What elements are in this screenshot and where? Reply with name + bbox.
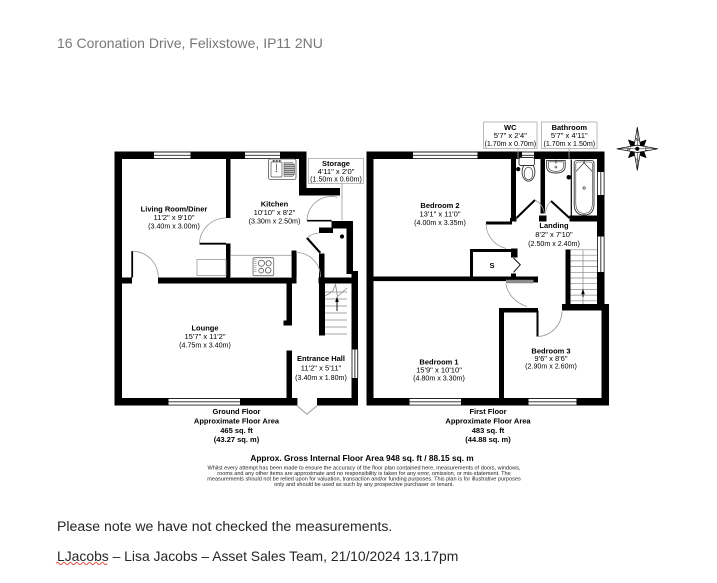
svg-text:15'7" x 11'2": 15'7" x 11'2" (184, 332, 225, 341)
svg-text:Approximate Floor Area: Approximate Floor Area (194, 416, 280, 425)
svg-text:(2.90m x 2.60m): (2.90m x 2.60m) (525, 363, 577, 371)
svg-text:483 sq. ft: 483 sq. ft (472, 426, 505, 435)
svg-text:Landing: Landing (539, 221, 569, 230)
svg-text:13'1" x 11'0": 13'1" x 11'0" (419, 210, 460, 219)
svg-text:First Floor: First Floor (469, 407, 506, 416)
svg-text:only and should be used as suc: only and should be used as such by any p… (274, 482, 454, 488)
svg-text:(43.27 sq. m): (43.27 sq. m) (214, 435, 260, 444)
svg-text:11'2" x 5'11": 11'2" x 5'11" (301, 364, 342, 373)
svg-text:(1.50m x 0.60m): (1.50m x 0.60m) (310, 175, 362, 183)
svg-text:5'7" x 4'11": 5'7" x 4'11" (551, 131, 588, 140)
svg-text:Ground Floor: Ground Floor (213, 407, 261, 416)
svg-text:N: N (636, 137, 639, 142)
svg-text:Approximate Floor Area: Approximate Floor Area (445, 416, 531, 425)
svg-text:S: S (636, 157, 639, 162)
svg-text:LJacobs – Lisa Jacobs – Asset: LJacobs – Lisa Jacobs – Asset Sales Team… (57, 548, 458, 564)
svg-text:(4.75m x 3.40m): (4.75m x 3.40m) (179, 342, 231, 350)
svg-text:5'7" x 2'4": 5'7" x 2'4" (494, 131, 528, 140)
svg-text:(4.80m x 3.30m): (4.80m x 3.30m) (413, 375, 465, 383)
svg-text:15'9" x 10'10": 15'9" x 10'10" (416, 366, 462, 375)
svg-text:11'2" x 9'10": 11'2" x 9'10" (153, 213, 194, 222)
svg-text:(3.30m x 2.50m): (3.30m x 2.50m) (249, 218, 301, 226)
svg-text:(2.50m x 2.40m): (2.50m x 2.40m) (528, 240, 580, 248)
svg-text:16 Coronation Drive, Felixstow: 16 Coronation Drive, Felixstowe, IP11 2N… (57, 35, 323, 51)
svg-text:465 sq. ft: 465 sq. ft (220, 426, 253, 435)
svg-text:Please note we have not checke: Please note we have not checked the meas… (57, 518, 392, 534)
svg-text:(44.88 sq. m): (44.88 sq. m) (465, 435, 511, 444)
svg-text:(1.70m x 1.50m): (1.70m x 1.50m) (543, 140, 595, 148)
svg-text:10'10" x 8'2": 10'10" x 8'2" (254, 208, 296, 217)
svg-text:8'2" x 7'10": 8'2" x 7'10" (535, 230, 573, 239)
svg-text:(4.00m x 3.35m): (4.00m x 3.35m) (414, 219, 466, 227)
svg-text:Approx. Gross Internal Floor A: Approx. Gross Internal Floor Area 948 sq… (250, 453, 473, 463)
svg-text:E: E (645, 147, 648, 152)
svg-text:S: S (489, 261, 494, 270)
svg-text:(3.40m x 3.00m): (3.40m x 3.00m) (148, 223, 200, 231)
svg-text:(1.70m x 0.70m): (1.70m x 0.70m) (484, 140, 536, 148)
svg-text:(3.40m x 1.80m): (3.40m x 1.80m) (295, 374, 347, 382)
svg-text:Entrance Hall: Entrance Hall (297, 354, 345, 363)
